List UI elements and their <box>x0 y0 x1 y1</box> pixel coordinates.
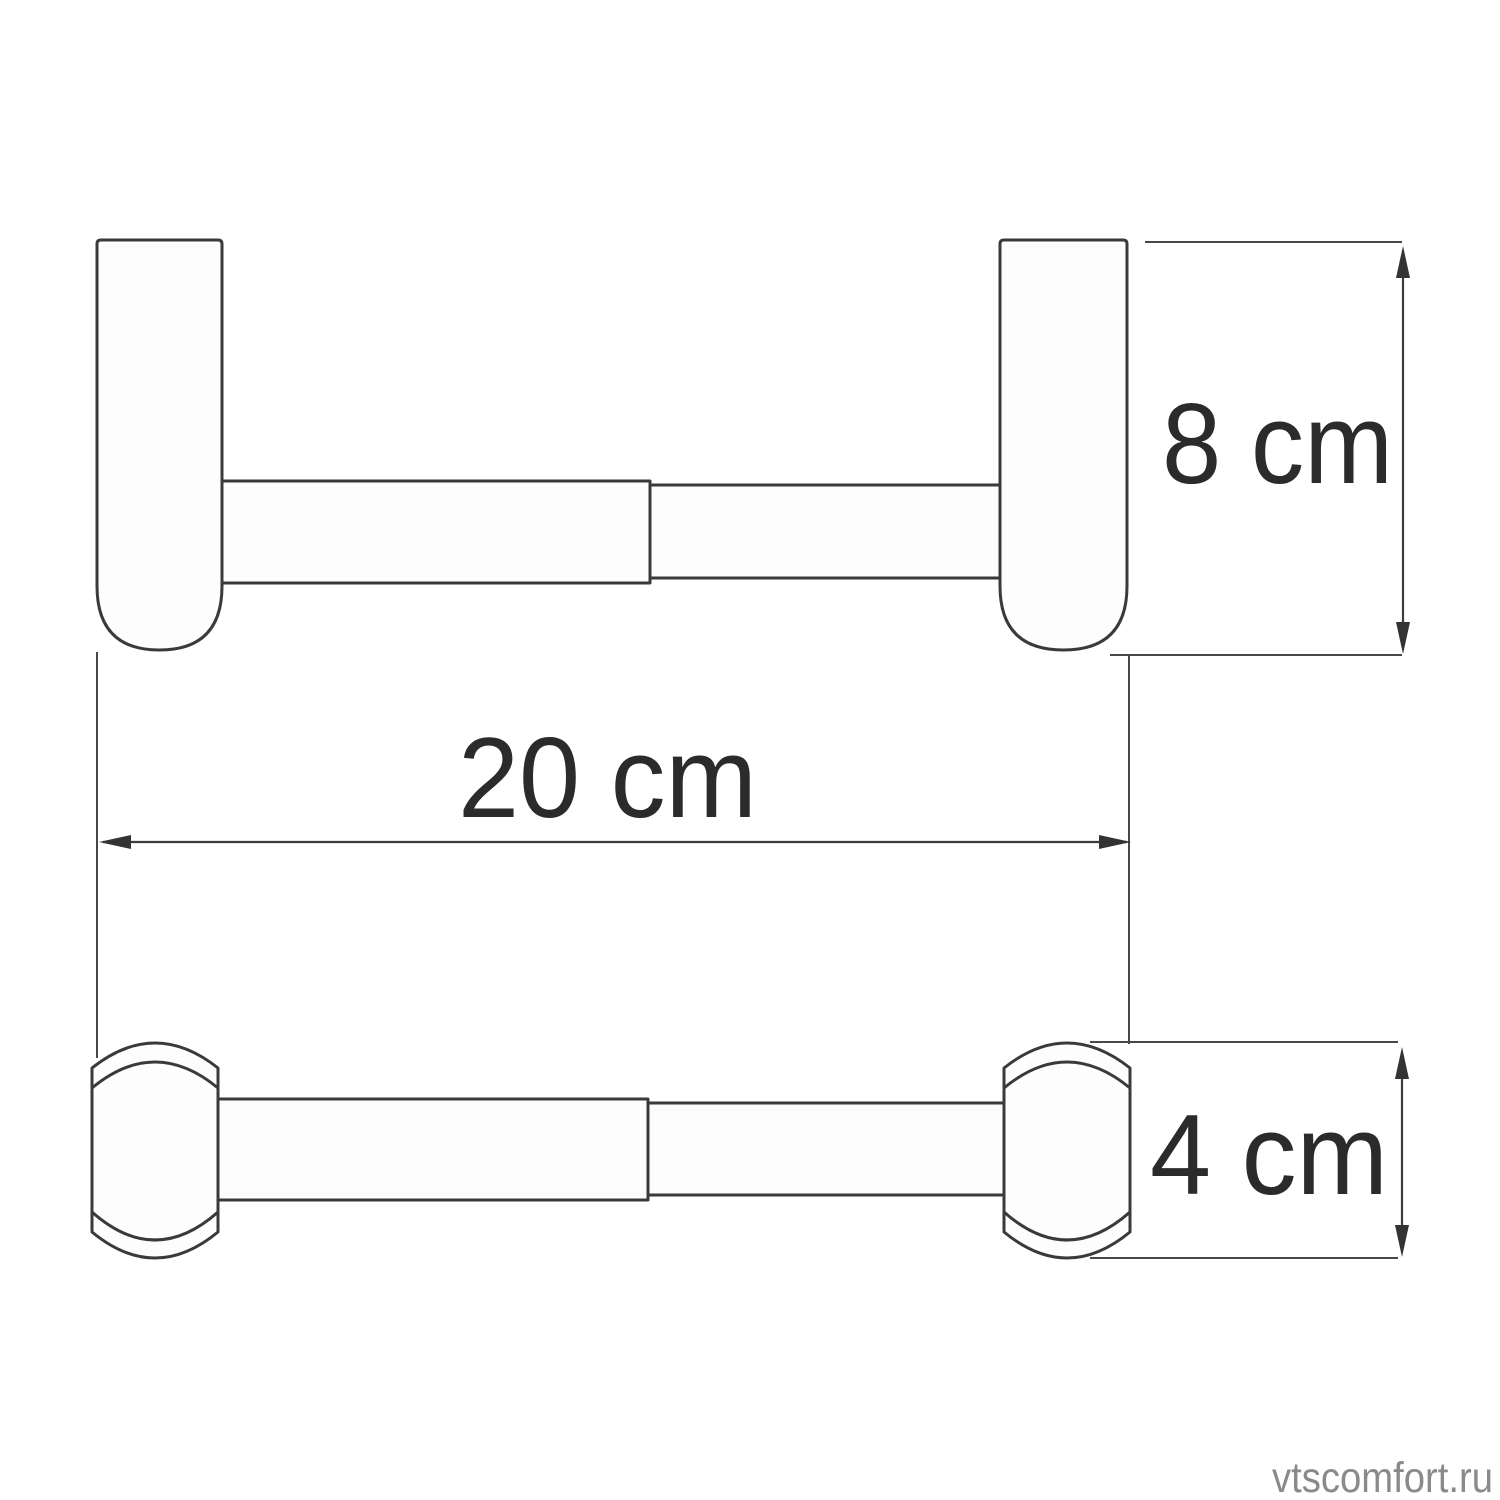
depth-arrow-up-icon <box>1395 1047 1409 1079</box>
height-label: 8 cm <box>1162 381 1393 508</box>
front-view <box>97 240 1127 650</box>
diagram-svg: 8 cm 20 cm 4 cm vtscomfort.ru <box>0 0 1500 1500</box>
front-left-bracket <box>97 240 222 650</box>
depth-arrow-down-icon <box>1395 1225 1409 1257</box>
height-arrow-down-icon <box>1396 622 1410 654</box>
width-arrow-left-icon <box>99 835 131 849</box>
watermark-text: vtscomfort.ru <box>1272 1454 1493 1500</box>
front-rail-inner-tube <box>650 485 1000 578</box>
dimension-depth: 4 cm <box>1090 1042 1409 1258</box>
front-rail-outer-tube <box>222 481 650 583</box>
top-view <box>92 1043 1130 1258</box>
top-rail-inner-tube <box>648 1103 1004 1195</box>
front-right-bracket <box>1000 240 1127 650</box>
width-label: 20 cm <box>458 715 757 842</box>
height-arrow-up-icon <box>1396 246 1410 278</box>
width-arrow-right-icon <box>1099 835 1131 849</box>
dimension-diagram: 8 cm 20 cm 4 cm vtscomfort.ru <box>0 0 1500 1500</box>
dimension-height: 8 cm <box>1110 242 1410 655</box>
depth-label: 4 cm <box>1150 1092 1388 1219</box>
dimension-width: 20 cm <box>97 652 1131 1058</box>
top-rail-outer-tube <box>218 1099 648 1200</box>
